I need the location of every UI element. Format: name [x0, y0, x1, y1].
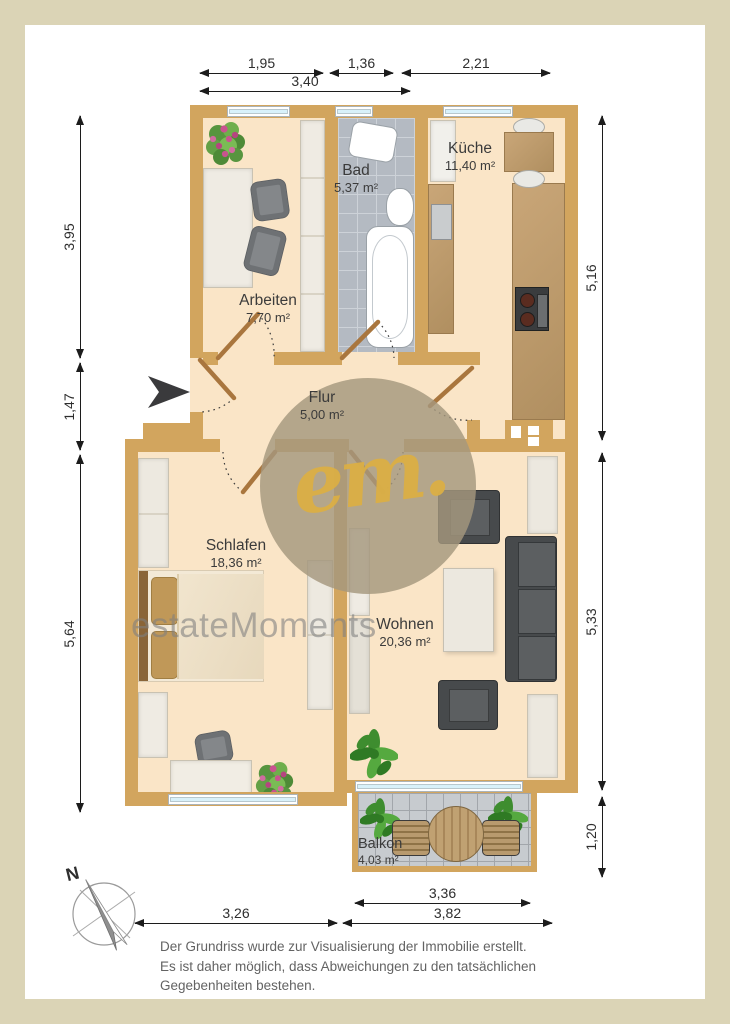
window	[168, 794, 298, 805]
office-chair	[249, 178, 290, 223]
wardrobe	[300, 120, 325, 352]
dimension-arrow: 5,16	[602, 116, 603, 440]
dimension-arrow: 3,95	[80, 116, 81, 358]
coffee-table	[443, 568, 494, 652]
wall	[415, 118, 428, 365]
washbasin	[386, 188, 414, 226]
dimension-label: 5,64	[61, 620, 77, 647]
balcony-chair	[482, 820, 520, 856]
compass-icon: N	[58, 858, 150, 954]
dimension-arrow: 1,36	[330, 73, 393, 74]
dimension-label: 3,26	[222, 905, 249, 921]
washing-machine	[347, 120, 399, 163]
dimension-label: 3,40	[291, 73, 318, 89]
room-label-schlafen: Schlafen 18,36 m²	[206, 537, 266, 571]
dimension-label: 1,95	[248, 55, 275, 71]
sofa	[505, 536, 557, 682]
dimension-label: 2,21	[462, 55, 489, 71]
wall	[143, 423, 203, 440]
dimension-arrow: 5,64	[80, 455, 81, 812]
kitchen-sink	[431, 204, 452, 240]
dimension-label: 3,36	[429, 885, 456, 901]
door-swing-bad	[336, 300, 400, 364]
armchair	[438, 680, 498, 730]
disclaimer-line: Gegebenheiten bestehen.	[160, 976, 536, 996]
north-label: N	[64, 863, 81, 886]
disclaimer-line: Der Grundriss wurde zur Visualisierung d…	[160, 937, 536, 957]
dimension-label: 5,16	[583, 264, 599, 291]
dimension-arrow: 3,40	[200, 91, 410, 92]
disclaimer: Der Grundriss wurde zur Visualisierung d…	[160, 937, 536, 996]
balcony-window-door	[355, 781, 523, 792]
dimension-arrow: 2,21	[402, 73, 550, 74]
room-label-arbeiten: Arbeiten 7,70 m²	[239, 292, 297, 326]
dimension-label: 5,33	[583, 608, 599, 635]
wardrobe	[138, 458, 169, 568]
dimension-label: 3,82	[434, 905, 461, 921]
door-swing-entrance	[188, 354, 250, 418]
window	[335, 106, 373, 117]
dining-table	[504, 132, 554, 172]
dimension-label: 1,20	[583, 823, 599, 850]
dimension-arrow: 3,36	[355, 903, 530, 904]
flower-plant-icon	[204, 120, 248, 168]
floor-plan-canvas: em. estateMoments Arbeiten 7,70 m² Bad 5…	[0, 0, 730, 1024]
dimension-label: 1,47	[61, 393, 77, 420]
dimension-arrow: 5,33	[602, 453, 603, 790]
dimension-arrow: 1,20	[602, 797, 603, 877]
green-plant-icon	[350, 728, 398, 780]
stove	[515, 287, 549, 331]
sideboard	[527, 456, 558, 534]
room-label-kueche: Küche 11,40 m²	[445, 140, 495, 174]
disclaimer-line: Es ist daher möglich, dass Abweichungen …	[160, 957, 536, 977]
window	[227, 106, 290, 117]
dimension-arrow: 3,26	[135, 923, 337, 924]
room-label-balkon: Balkon 4,03 m²	[358, 836, 402, 867]
sideboard	[527, 694, 558, 778]
balcony-table	[428, 806, 484, 862]
room-label-wohnen: Wohnen 20,36 m²	[376, 616, 433, 650]
window	[443, 106, 513, 117]
dimension-arrow: 1,47	[80, 363, 81, 450]
dimension-label: 3,95	[61, 223, 77, 250]
shaft	[505, 420, 553, 452]
desk	[203, 168, 253, 288]
dining-chair	[513, 170, 545, 188]
dimension-label: 1,36	[348, 55, 375, 71]
watermark-brand: estateMoments	[131, 606, 377, 646]
entrance-arrow-icon	[148, 374, 192, 410]
dimension-arrow: 3,82	[343, 923, 552, 924]
room-label-bad: Bad 5,37 m²	[334, 162, 378, 196]
dresser	[138, 692, 168, 758]
room-label-flur: Flur 5,00 m²	[300, 389, 344, 423]
